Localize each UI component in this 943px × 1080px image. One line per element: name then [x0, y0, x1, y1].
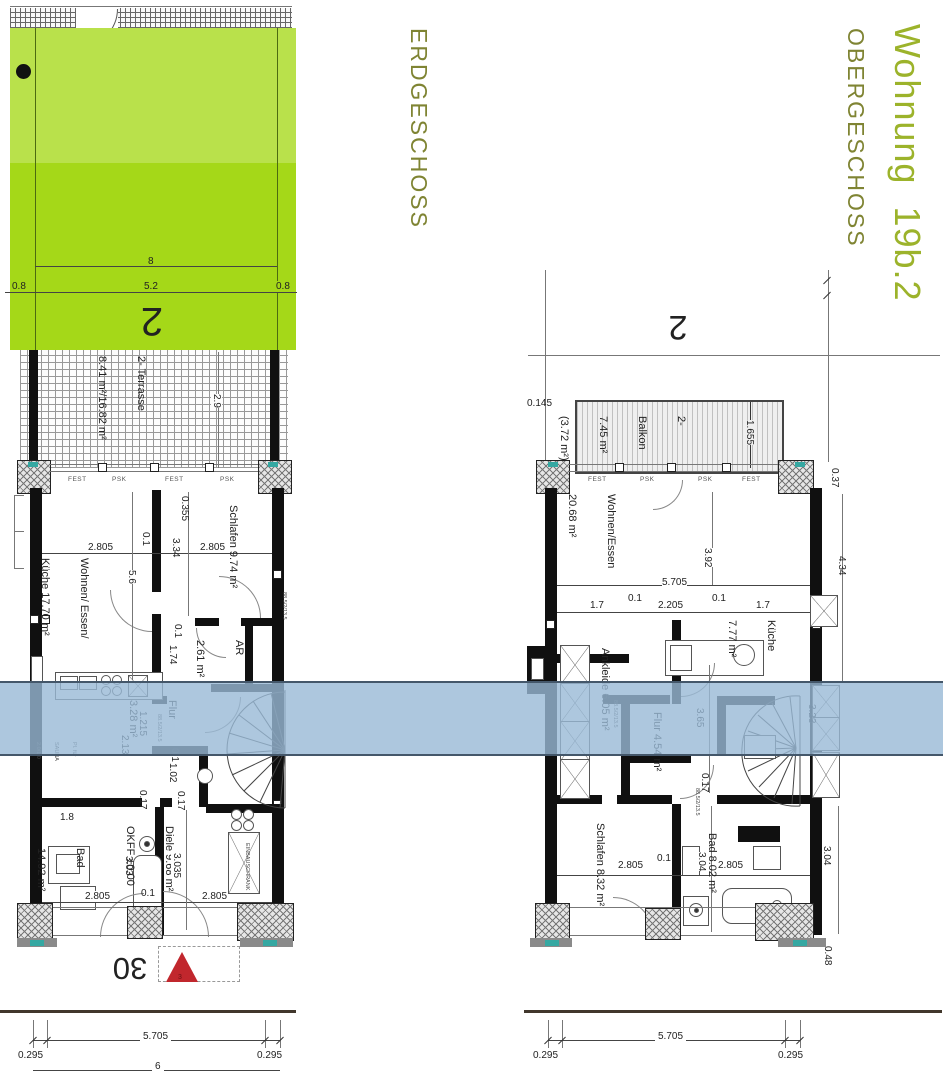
garden-plot-number: 2 [132, 298, 172, 344]
room-label-line: Küche 17.70 m² [38, 558, 51, 639]
window-tag: PSK [112, 474, 127, 485]
garden-dim-mid: 5.2 [144, 281, 158, 292]
dim-label: 2.805 [718, 860, 743, 871]
dim-label: 2.805 [202, 891, 227, 902]
door-arc [110, 590, 152, 632]
room-label-wohnen: Wohnen/ Essen/ Küche 17.70 m² [12, 558, 116, 639]
room-label-kueche: Küche 7.77 m² [699, 620, 803, 657]
wall-connector [546, 620, 555, 629]
wall-interior [42, 798, 142, 807]
dim-label: 2.805 [85, 891, 110, 902]
dim-label: 1.02 [167, 763, 178, 782]
room-label-line: 7.45 m² [596, 416, 609, 461]
bath-cabinet [738, 826, 780, 842]
window-tag: FEST [165, 474, 184, 485]
dim-extension [265, 1020, 266, 1048]
garden-dim-line-parts [5, 292, 297, 293]
door-size-tag: 88.5/2/13.5 [694, 788, 700, 816]
window-tag: PSK [698, 474, 713, 485]
dim-label: 3.035 [171, 853, 182, 878]
dim-bracket [14, 495, 24, 496]
door-size-tag: 88.5/2/13.5 [281, 592, 287, 620]
dim-label: 0.17 [137, 790, 148, 809]
dim-label: 2.805 [88, 542, 113, 553]
shaft-slot [531, 658, 544, 680]
window-tag: FEST [68, 474, 87, 485]
dim-label: 0.37 [829, 468, 840, 487]
garden-edge-right [277, 28, 278, 350]
dim-label: 0.17 [699, 773, 710, 792]
room-label-diele: Diele 9.68 m² OKFF ±0.00 [97, 826, 201, 891]
window-tag: FEST [742, 474, 761, 485]
ground-line [524, 1010, 942, 1013]
window-tag: FEST [588, 474, 607, 485]
terrace-label: 2- Terrasse 8.41 m²/16.82 m² [69, 356, 173, 440]
wall-interior [617, 795, 672, 804]
room-label-schlafen-og: Schlafen 8.32 m² [593, 823, 606, 906]
room-label-line: 2.61 m² [193, 640, 206, 677]
wall-niche [31, 656, 43, 682]
garden-dim-total: 8 [148, 256, 154, 267]
appliance-burner [243, 809, 254, 820]
wall-interior [160, 798, 172, 807]
dim-label: 0.295 [533, 1050, 558, 1061]
dim-label: 5.6 [126, 570, 137, 584]
terrace-post-right [270, 350, 279, 468]
dim-label: 1.7 [590, 600, 604, 611]
dim-extension [132, 492, 133, 680]
pier-eg-bottomright [237, 903, 294, 941]
window-connector [615, 463, 624, 472]
dim-extension [548, 1020, 549, 1048]
wall-connector [273, 570, 282, 579]
insulation-mark [545, 940, 559, 946]
dim-label: 5.705 [655, 1031, 686, 1042]
window-connector [722, 463, 731, 472]
terrace-dim-line [218, 352, 219, 468]
dim-label: 5.705 [662, 577, 687, 588]
insulation-mark [263, 940, 277, 946]
window-connector [205, 463, 214, 472]
built-in-wardrobe [560, 645, 590, 685]
dim-label: 0.17 [175, 791, 186, 810]
room-label-line: Bad [73, 848, 86, 891]
terrace-label-line2: 8.41 m²/16.82 m² [95, 356, 108, 440]
dim-label: 0.295 [18, 1050, 43, 1061]
window-connector [98, 463, 107, 472]
dim-label: 0.295 [257, 1050, 282, 1061]
dim-label: 0.1 [172, 624, 183, 638]
marker-number: 3 [178, 972, 182, 983]
room-label-wohnen-og: Wohnen/Essen 20.68 m² [539, 494, 643, 568]
floor-title-erdgeschoss: ERDGESCHOSS [405, 28, 432, 229]
dim-label: 2.205 [658, 600, 683, 611]
terrace-dim-depth: 2.9 [211, 394, 222, 408]
terrace-label-line1: 2- Terrasse [134, 356, 147, 440]
dim-label: 0.295 [778, 1050, 803, 1061]
room-label-ar: AR 2.61 m² [167, 640, 271, 677]
wall-interior [195, 618, 219, 626]
dim-label: 0.1 [140, 532, 151, 546]
shaft-window [812, 752, 840, 798]
room-label-line: Küche [764, 620, 777, 657]
garden-area-light [10, 28, 296, 163]
garden-dim-left: 0.8 [12, 281, 26, 292]
dim-label: 1.8 [60, 812, 74, 823]
insulation-mark [28, 462, 38, 467]
dim-label: 0.48 [822, 946, 833, 965]
pier-og-bottomleft [535, 903, 570, 941]
dim-label: 1.7 [756, 600, 770, 611]
dim-label: 0.1 [657, 853, 671, 864]
room-label-line: Wohnen/Essen [604, 494, 617, 568]
insulation-mark [795, 462, 805, 467]
dim-extension [33, 1020, 34, 1048]
dim-label: 0.1 [141, 888, 155, 899]
dim-extension [838, 806, 839, 934]
terrace-post-left [29, 350, 38, 468]
garden-fence-hatch [10, 8, 292, 28]
toilet [753, 846, 781, 870]
dim-extension [280, 1020, 281, 1048]
window-connector [150, 463, 159, 472]
window-connector [667, 463, 676, 472]
pier-eg-bottommid [127, 906, 163, 939]
shower-drain-dot [694, 908, 699, 913]
og-plot-number: 2 [660, 306, 696, 348]
door-arc [653, 480, 683, 510]
garden-tree-dot [16, 64, 31, 79]
appliance-burner [231, 820, 242, 831]
wall-interior [241, 618, 284, 626]
dim-tick [823, 277, 831, 285]
appliance-burner [243, 820, 254, 831]
room-label-line: AR [232, 640, 245, 677]
garden-edge-left [35, 28, 36, 350]
house-number: 30 [108, 950, 152, 986]
room-label-schlafen: Schlafen 9.74 m² [226, 505, 239, 588]
dim-label: 6 [152, 1061, 164, 1072]
dim-label: 4.34 [836, 556, 847, 575]
dim-label: 0.1 [712, 593, 726, 604]
dim-label: 3.04 [696, 852, 707, 871]
dim-extension [842, 494, 843, 682]
room-label-line: Wohnen/ Essen/ [77, 558, 90, 639]
garden-dim-right: 0.8 [276, 281, 290, 292]
dim-label: 3.34 [170, 538, 181, 557]
room-label-line: 7.77 m² [725, 620, 738, 657]
dim-label: 3.04 [821, 846, 832, 865]
room-label-line: 14.92 m² [34, 848, 47, 891]
wall-interior [152, 490, 161, 592]
dim-label: 3.03 [123, 856, 134, 875]
dim-label: 1.74 [167, 645, 178, 664]
room-label-balkon: 2- Balkon 7.45 m² (3.72 m²) [531, 416, 713, 461]
dim-label: 5.705 [140, 1031, 171, 1042]
dim-extension [712, 492, 713, 585]
insulation-mark [793, 940, 807, 946]
dim-bracket [14, 531, 24, 532]
apartment-title: Wohnung 19b.2 [886, 24, 928, 302]
dim-label: 3.92 [702, 548, 713, 567]
shaft-window [810, 595, 838, 627]
dim-label: 1.655 [744, 420, 755, 445]
floorplan-canvas: 8 0.8 5.2 0.8 2 2- Terrasse 8.41 m²/16.8… [0, 0, 943, 1080]
insulation-mark [268, 462, 278, 467]
dim-line [42, 902, 272, 903]
og-boundary-line [528, 355, 940, 356]
dim-label: 2.805 [200, 542, 225, 553]
window-tag: PSK [220, 474, 235, 485]
dim-tick [823, 292, 831, 300]
pier-og-bottommid [645, 908, 681, 940]
wardrobe-annotation: EINBAUSCHRANK [244, 843, 250, 890]
dim-label: 0.1 [628, 593, 642, 604]
appliance-burner [231, 809, 242, 820]
blue-highlight-band [0, 681, 943, 756]
built-in-wardrobe [560, 759, 590, 799]
dim-extension [47, 1020, 48, 1048]
dim-line [557, 612, 810, 613]
room-label-line: 20.68 m² [565, 494, 578, 568]
pier-og-bottomright [755, 903, 814, 941]
north-marker-triangle [166, 952, 198, 982]
dim-label: 2.805 [618, 860, 643, 871]
ground-line [0, 1010, 296, 1013]
dim-extension [800, 1020, 801, 1048]
stair-pole [197, 768, 213, 784]
dim-extension [562, 1020, 563, 1048]
insulation-mark [30, 940, 44, 946]
garden-fence-topline [10, 6, 292, 7]
room-label-line: Balkon [635, 416, 648, 461]
floor-title-obergeschoss: OBERGESCHOSS [842, 28, 869, 248]
garden-dim-line-total [35, 266, 277, 267]
dim-label: 0.145 [527, 398, 552, 409]
dim-extension [785, 1020, 786, 1048]
og-boundary-line [828, 270, 829, 462]
dim-label: 0.355 [179, 496, 190, 521]
pier-eg-bottomleft [17, 903, 53, 941]
insulation-mark [548, 462, 558, 467]
room-label-line: (3.72 m²) [557, 416, 570, 461]
room-label-line: 2- [674, 416, 687, 461]
